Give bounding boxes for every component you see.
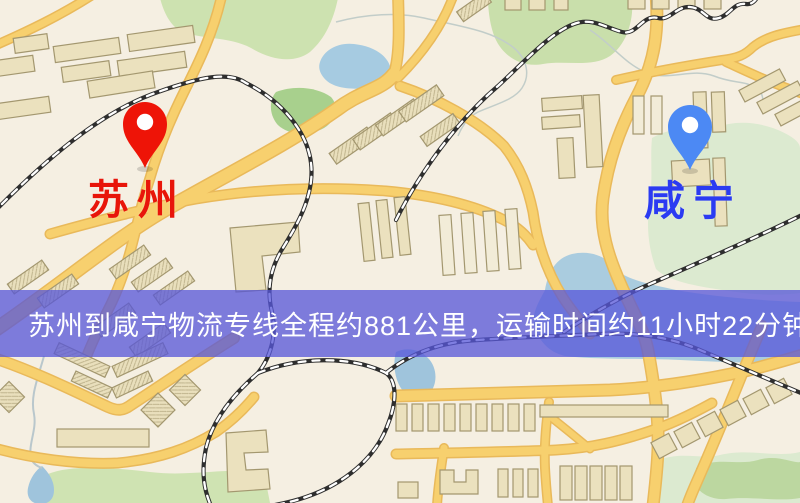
- map-canvas: [0, 0, 800, 503]
- origin-city-label: 苏州: [88, 180, 186, 221]
- map-viewport[interactable]: 苏州 咸宁 苏州到咸宁物流专线全程约881公里，运输时间约11小时22分钟.: [0, 0, 800, 503]
- route-info-banner: 苏州到咸宁物流专线全程约881公里，运输时间约11小时22分钟.: [0, 290, 800, 357]
- route-info-text: 苏州到咸宁物流专线全程约881公里，运输时间约11小时22分钟.: [0, 304, 800, 343]
- destination-city-label: 咸宁: [644, 181, 742, 222]
